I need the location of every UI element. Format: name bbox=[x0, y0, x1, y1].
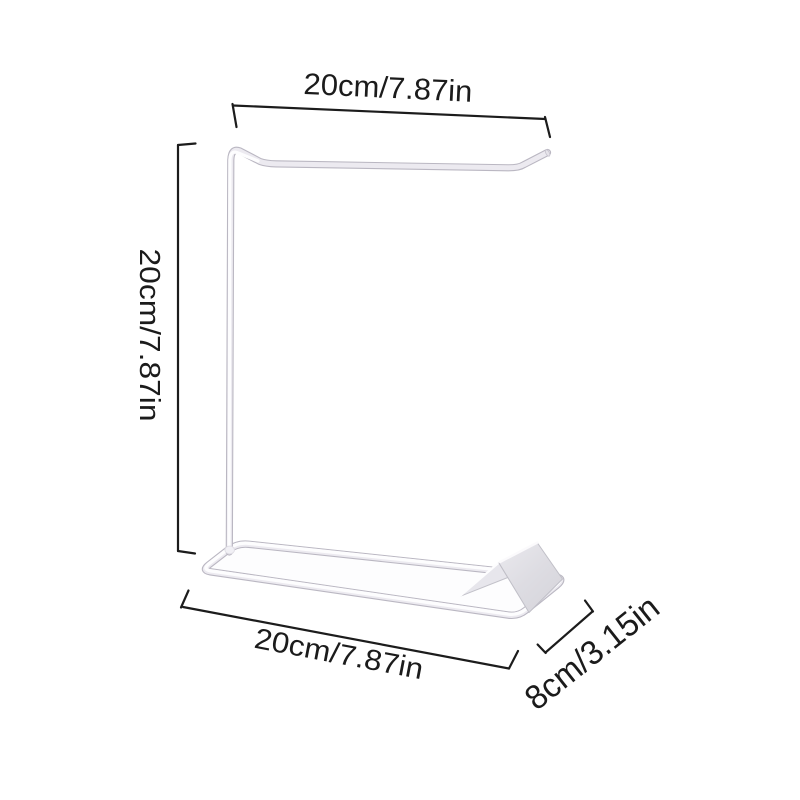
svg-text:20cm/7.87in: 20cm/7.87in bbox=[133, 249, 165, 422]
